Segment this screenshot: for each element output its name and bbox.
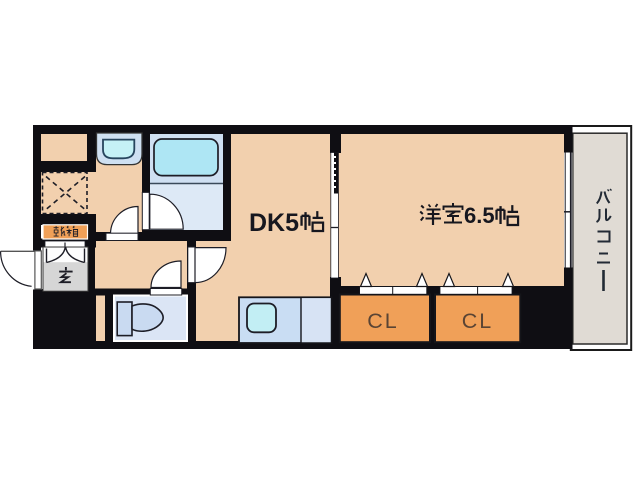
svg-text:CL: CL	[462, 309, 493, 333]
svg-text:6.5: 6.5	[464, 203, 495, 228]
svg-text:CL: CL	[367, 309, 398, 333]
svg-text:DK5: DK5	[249, 209, 299, 237]
